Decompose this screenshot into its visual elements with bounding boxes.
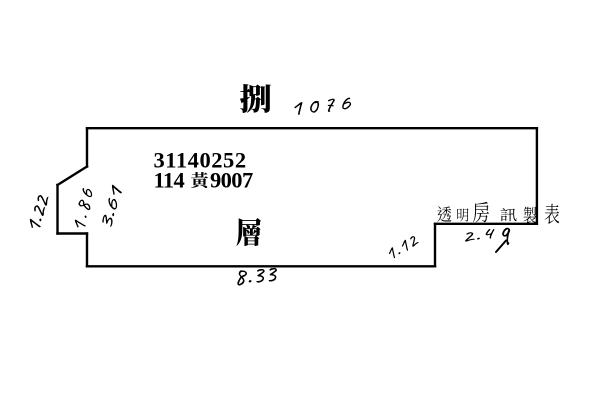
- svg-text:9007: 9007: [210, 168, 253, 193]
- svg-text:114: 114: [154, 168, 185, 193]
